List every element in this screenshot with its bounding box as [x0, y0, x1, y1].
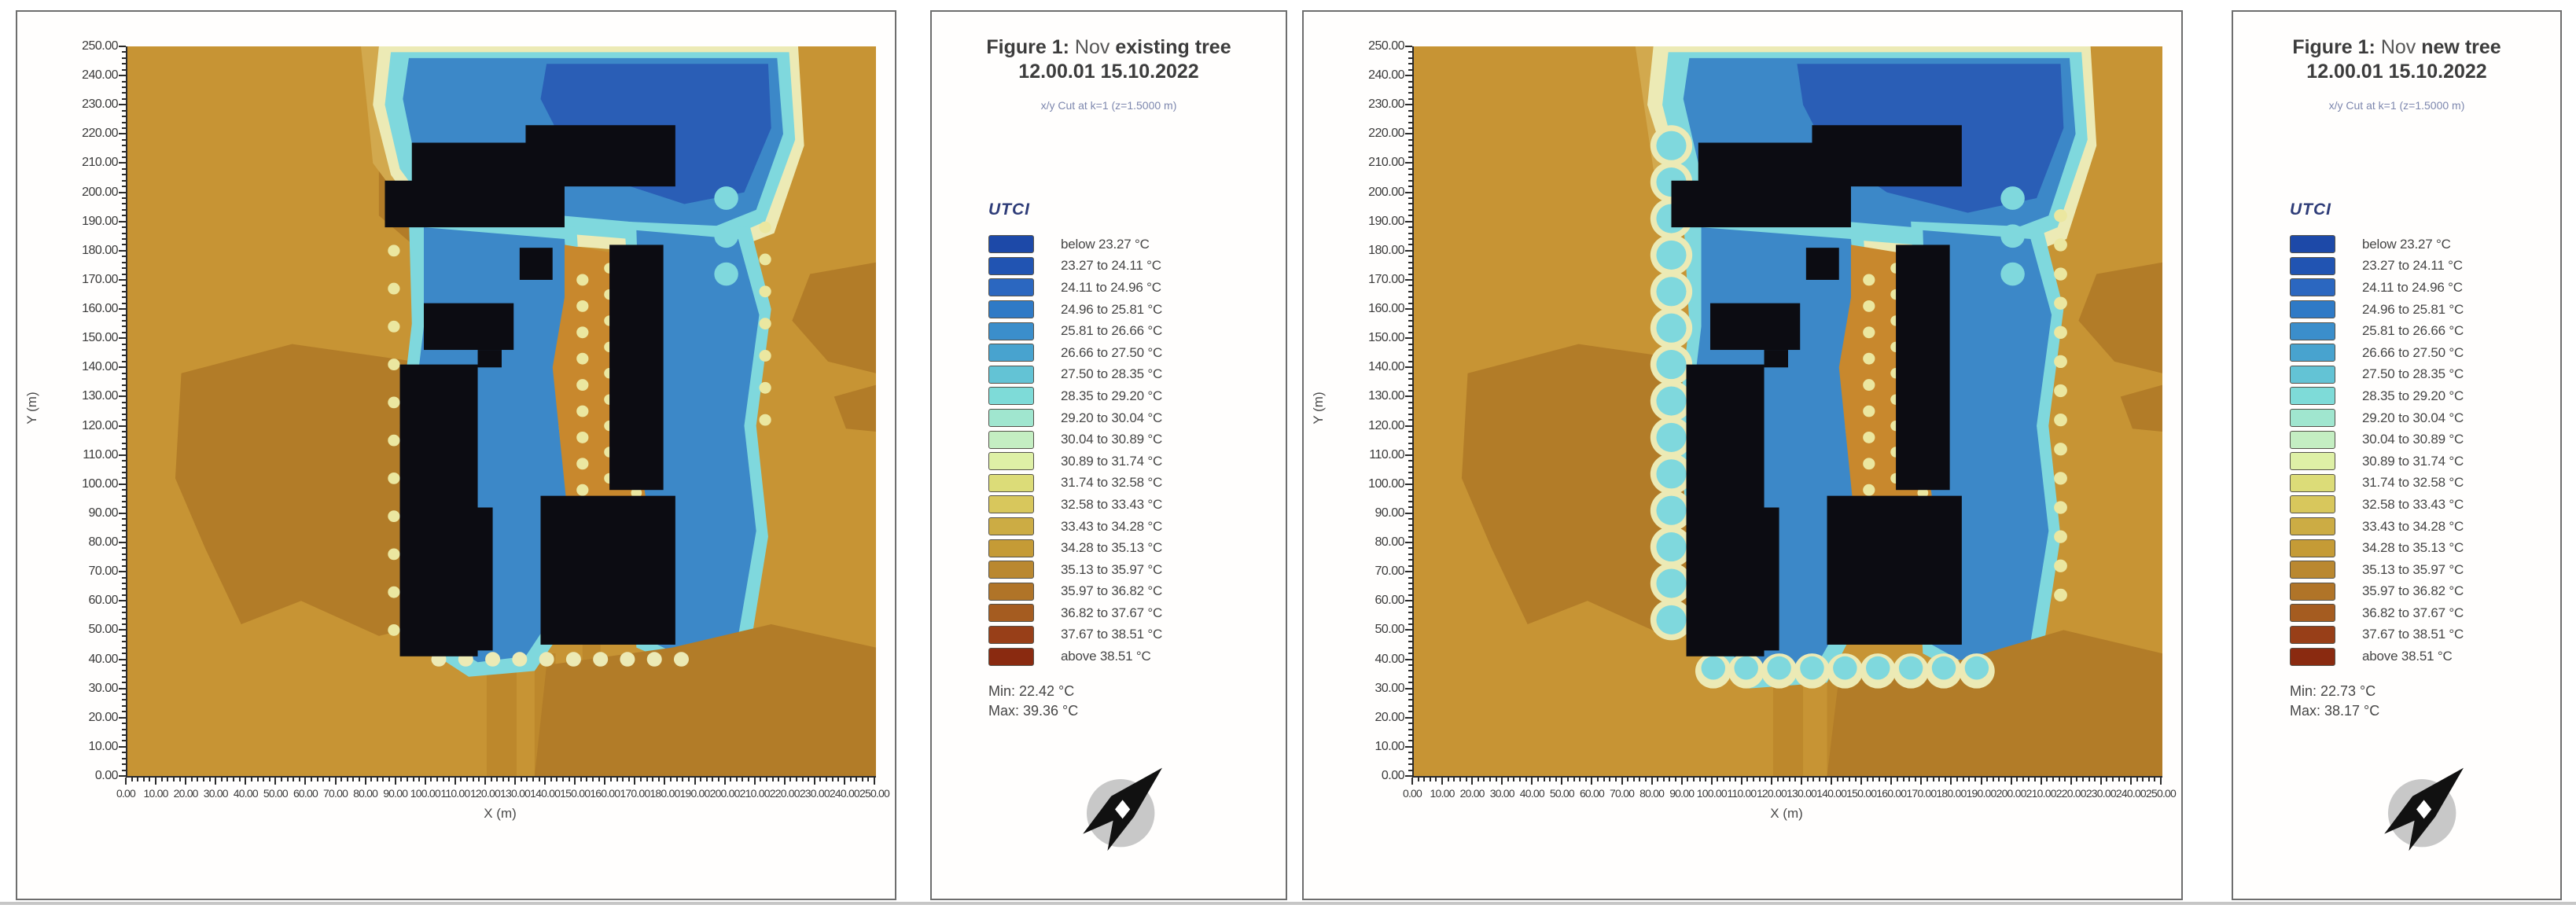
axis-tick — [2160, 778, 2162, 785]
axis-tick — [209, 778, 211, 781]
axis-tick — [874, 778, 875, 785]
axis-tick-label: 0.00 — [116, 787, 135, 800]
axis-tick-label: 50.00 — [1550, 787, 1574, 800]
axis-tick — [2046, 778, 2048, 781]
axis-tick — [867, 778, 869, 781]
legend-bin-label: 34.28 to 35.13 °C — [1061, 540, 1162, 556]
axis-tick — [365, 778, 366, 785]
axis-tick — [122, 226, 126, 228]
legend-bin-label: 37.67 to 38.51 °C — [2362, 627, 2464, 642]
axis-tick — [1405, 425, 1412, 427]
axis-tick — [473, 778, 474, 781]
legend-row: 24.96 to 25.81 °C — [2290, 299, 2464, 321]
axis-tick-label: 160.00 — [1348, 302, 1404, 316]
axis-tick — [122, 156, 126, 158]
axis-tick — [1405, 250, 1412, 252]
legend-bin-label: 35.97 to 36.82 °C — [1061, 583, 1162, 599]
axis-tick — [1681, 778, 1683, 785]
axis-tick — [616, 778, 618, 781]
axis-tick — [826, 778, 827, 781]
axis-tick — [814, 778, 815, 785]
axis-tick — [122, 577, 126, 579]
axis-tick — [1408, 110, 1412, 112]
figure-label: Figure 1: — [2292, 36, 2375, 58]
axis-tick — [2070, 778, 2072, 785]
axis-tick — [1938, 778, 1940, 781]
axis-tick — [370, 778, 372, 781]
legend-swatch — [2290, 322, 2335, 340]
axis-tick — [122, 618, 126, 620]
axis-tick — [122, 402, 126, 403]
legend-swatch — [2290, 539, 2335, 557]
axis-tick — [122, 559, 126, 561]
axis-tick — [122, 664, 126, 666]
axis-tick — [322, 778, 324, 781]
legend-row: 31.74 to 32.58 °C — [988, 473, 1162, 495]
axis-tick — [1408, 244, 1412, 245]
legend-bin-label: 35.13 to 35.97 °C — [2362, 562, 2464, 578]
axis-tick — [1746, 778, 1748, 781]
axis-tick — [1408, 291, 1412, 292]
legend-swatch — [988, 583, 1034, 601]
axis-tick — [1408, 419, 1412, 421]
axis-tick-label: 140.00 — [61, 360, 118, 374]
legend-swatch — [2290, 409, 2335, 427]
axis-tick — [1729, 778, 1731, 781]
legend-bin-label: 33.43 to 34.28 °C — [2362, 519, 2464, 535]
axis-tick — [119, 366, 126, 368]
axis-tick — [122, 407, 126, 409]
legend-row: 28.35 to 29.20 °C — [2290, 385, 2464, 407]
legend-bin-label: 29.20 to 30.04 °C — [2362, 410, 2464, 426]
axis-tick — [856, 778, 857, 781]
axis-tick — [1408, 226, 1412, 228]
axis-tick — [1585, 778, 1587, 781]
north-arrow-icon — [2379, 760, 2473, 855]
axis-tick-label: 60.00 — [61, 594, 118, 608]
axis-tick — [131, 778, 133, 781]
axis-tick — [335, 778, 337, 785]
axis-tick — [149, 778, 150, 781]
axis-tick — [1408, 361, 1412, 362]
axis-tick-label: 150.00 — [61, 331, 118, 345]
figure-datetime: 12.00.01 15.10.2022 — [2233, 60, 2560, 84]
map-panel-existing: Y (m) X (m) 0.000.0010.0010.0020.0020.00… — [16, 10, 896, 900]
legend-bin-label: 24.96 to 25.81 °C — [2362, 302, 2464, 318]
axis-tick — [119, 75, 126, 76]
axis-tick — [119, 192, 126, 193]
axis-tick — [1986, 778, 1988, 781]
axis-tick — [610, 778, 612, 781]
axis-tick-label: 210.00 — [1348, 156, 1404, 170]
axis-tick — [122, 180, 126, 182]
axis-tick — [1408, 670, 1412, 671]
axis-tick — [1408, 325, 1412, 327]
axis-tick — [122, 763, 126, 765]
axis-tick-label: 180.00 — [650, 787, 679, 800]
axis-tick-label: 30.00 — [1348, 682, 1404, 696]
map-panel-new: Y (m) X (m) 0.000.0010.0010.0020.0020.00… — [1302, 10, 2183, 900]
legend-swatch — [988, 495, 1034, 513]
legend-row: 27.50 to 28.35 °C — [2290, 364, 2464, 386]
axis-tick — [460, 778, 462, 781]
axis-tick — [122, 355, 126, 356]
axis-tick — [122, 647, 126, 649]
axis-tick — [766, 778, 767, 781]
axis-tick-label: 110.00 — [61, 448, 118, 462]
axis-tick — [122, 303, 126, 304]
axis-tick-label: 210.00 — [740, 787, 770, 800]
legend-row: below 23.27 °C — [2290, 234, 2464, 256]
legend-swatch — [2290, 387, 2335, 405]
axis-tick — [1408, 448, 1412, 450]
figure-month: Nov — [1069, 36, 1115, 58]
axis-tick — [1405, 133, 1412, 134]
axis-tick-label: 90.00 — [383, 787, 407, 800]
axis-tick — [122, 635, 126, 637]
legend-swatch — [988, 409, 1034, 427]
axis-tick-label: 100.00 — [410, 787, 440, 800]
axis-tick-label: 190.00 — [1348, 215, 1404, 229]
axis-tick — [122, 606, 126, 608]
axis-tick — [359, 778, 360, 781]
axis-tick-label: 70.00 — [1610, 787, 1634, 800]
axis-tick — [122, 203, 126, 204]
axis-tick — [1408, 274, 1412, 275]
axis-tick — [122, 98, 126, 100]
x-axis-title: X (m) — [484, 806, 517, 822]
axis-tick — [1885, 778, 1886, 781]
axis-tick — [862, 778, 863, 781]
legend-bin-label: 28.35 to 29.20 °C — [2362, 388, 2464, 404]
axis-tick-label: 10.00 — [61, 740, 118, 754]
axis-tick-label: 0.00 — [1403, 787, 1422, 800]
axis-tick — [789, 778, 791, 781]
legend-swatch — [988, 604, 1034, 622]
axis-tick — [2088, 778, 2090, 781]
axis-tick — [2004, 778, 2006, 781]
axis-tick — [496, 778, 498, 781]
legend-bin-label: 34.28 to 35.13 °C — [2362, 540, 2464, 556]
axis-tick — [122, 489, 126, 491]
axis-tick — [122, 291, 126, 292]
axis-tick — [122, 81, 126, 83]
axis-tick — [122, 139, 126, 141]
axis-tick — [191, 778, 193, 781]
axis-tick — [122, 390, 126, 392]
axis-tick — [122, 612, 126, 613]
legend-row: 29.20 to 30.04 °C — [2290, 407, 2464, 429]
axis-tick — [670, 778, 672, 781]
axis-tick — [1408, 320, 1412, 322]
axis-tick — [1408, 209, 1412, 211]
axis-tick — [122, 553, 126, 555]
axis-tick-label: 0.00 — [1348, 769, 1404, 783]
axis-tick — [1603, 778, 1605, 781]
axis-tick — [796, 778, 797, 781]
legend-row: 23.27 to 24.11 °C — [988, 256, 1162, 278]
axis-tick — [1974, 778, 1976, 781]
axis-tick — [1825, 778, 1827, 781]
axis-tick — [688, 778, 690, 781]
axis-tick — [2100, 778, 2102, 785]
axis-tick — [122, 734, 126, 736]
axis-tick — [748, 778, 749, 781]
axis-tick-label: 70.00 — [61, 564, 118, 579]
axis-tick — [1408, 186, 1412, 187]
y-axis-title: Y (m) — [24, 381, 40, 436]
axis-tick — [122, 641, 126, 642]
axis-tick-label: 120.00 — [61, 419, 118, 433]
axis-tick — [1408, 653, 1412, 654]
axis-tick — [119, 688, 126, 690]
axis-tick — [1567, 778, 1569, 781]
axis-tick — [122, 127, 126, 129]
axis-tick — [1765, 778, 1766, 781]
axis-tick-label: 230.00 — [2086, 787, 2116, 800]
axis-tick-label: 50.00 — [61, 623, 118, 637]
axis-tick — [682, 778, 683, 781]
axis-tick — [730, 778, 731, 781]
axis-tick — [430, 778, 432, 781]
axis-tick — [1408, 151, 1412, 153]
axis-tick — [580, 778, 582, 781]
axis-tick — [1579, 778, 1581, 781]
legend-bin-label: 25.81 to 26.66 °C — [2362, 323, 2464, 339]
axis-tick — [1735, 778, 1736, 781]
legend-bin-label: 31.74 to 32.58 °C — [1061, 475, 1162, 491]
axis-tick — [251, 778, 252, 781]
legend-bin-label: 30.89 to 31.74 °C — [1061, 454, 1162, 469]
axis-tick — [569, 778, 570, 781]
axis-tick — [778, 778, 779, 781]
axis-tick — [1408, 460, 1412, 462]
axis-tick — [1408, 116, 1412, 117]
axis-tick — [1408, 729, 1412, 730]
axis-tick — [221, 778, 223, 781]
axis-tick — [1968, 778, 1970, 781]
axis-tick — [425, 778, 426, 785]
axis-tick-label: 30.00 — [1490, 787, 1514, 800]
axis-tick — [122, 244, 126, 245]
axis-tick — [1687, 778, 1688, 781]
axis-tick — [122, 262, 126, 263]
legend-swatch — [988, 257, 1034, 275]
axis-tick — [122, 274, 126, 275]
axis-tick-label: 120.00 — [1348, 419, 1404, 433]
axis-tick — [257, 778, 259, 781]
axis-tick — [1408, 314, 1412, 316]
axis-tick — [1408, 647, 1412, 649]
legend-bin-label: 23.27 to 24.11 °C — [1061, 258, 1161, 274]
axis-tick-label: 190.00 — [680, 787, 710, 800]
axis-tick-label: 190.00 — [61, 215, 118, 229]
axis-tick — [233, 778, 234, 781]
axis-tick — [1408, 122, 1412, 123]
axis-tick — [1408, 553, 1412, 555]
axis-tick — [1408, 63, 1412, 64]
legend-row: 33.43 to 34.28 °C — [2290, 516, 2464, 538]
axis-tick — [539, 778, 540, 781]
axis-tick — [317, 778, 318, 781]
legend-row: 35.13 to 35.97 °C — [988, 559, 1162, 581]
legend-row: 25.81 to 26.66 °C — [988, 320, 1162, 342]
axis-tick-label: 130.00 — [1348, 389, 1404, 403]
axis-tick — [718, 778, 719, 781]
axis-tick-label: 140.00 — [1348, 360, 1404, 374]
axis-tick — [122, 436, 126, 438]
figure-scenario: new tree — [2421, 36, 2501, 58]
axis-tick — [1435, 778, 1437, 781]
axis-tick — [215, 778, 216, 785]
axis-tick — [122, 320, 126, 322]
axis-tick — [1405, 659, 1412, 660]
axis-tick — [119, 337, 126, 339]
axis-tick — [119, 250, 126, 252]
axis-tick — [119, 542, 126, 543]
axis-tick — [1408, 51, 1412, 53]
axis-tick — [122, 699, 126, 701]
axis-tick — [2094, 778, 2096, 781]
axis-tick — [1408, 635, 1412, 637]
axis-tick — [544, 778, 546, 785]
legend-swatch — [2290, 257, 2335, 275]
axis-tick — [837, 778, 839, 781]
axis-tick — [1478, 778, 1479, 781]
axis-tick — [1408, 506, 1412, 508]
axis-tick — [1657, 778, 1658, 781]
axis-tick — [122, 547, 126, 549]
axis-tick — [508, 778, 510, 781]
axis-tick — [1950, 778, 1952, 785]
legend-bin-label: 37.67 to 38.51 °C — [1061, 627, 1162, 642]
axis-tick — [1408, 559, 1412, 561]
axis-tick — [122, 233, 126, 234]
legend-row: 24.11 to 24.96 °C — [988, 277, 1162, 299]
legend-bin-label: 23.27 to 24.11 °C — [2362, 258, 2463, 274]
axis-tick — [2011, 778, 2012, 785]
legend-swatch — [988, 626, 1034, 644]
figure-title: Figure 1: Nov new tree 12.00.01 15.10.20… — [2233, 35, 2560, 118]
axis-tick — [1408, 606, 1412, 608]
axis-tick — [122, 583, 126, 584]
axis-tick — [1926, 778, 1928, 781]
axis-tick — [1408, 407, 1412, 409]
axis-tick — [1908, 778, 1910, 781]
legend-row: 32.58 to 33.43 °C — [988, 494, 1162, 516]
axis-tick — [2016, 778, 2018, 781]
axis-tick — [1711, 778, 1713, 785]
axis-tick — [1408, 682, 1412, 683]
legend-row: 36.82 to 37.67 °C — [2290, 602, 2464, 624]
plot-area-new — [1412, 46, 2162, 778]
legend-panel-new: Figure 1: Nov new tree 12.00.01 15.10.20… — [2232, 10, 2562, 900]
axis-tick — [119, 484, 126, 485]
axis-tick — [1408, 156, 1412, 158]
axis-tick-label: 190.00 — [1967, 787, 1996, 800]
axis-tick-label: 170.00 — [61, 273, 118, 287]
axis-tick — [122, 332, 126, 333]
axis-tick — [1408, 436, 1412, 438]
axis-tick-label: 80.00 — [1639, 787, 1664, 800]
axis-tick — [197, 778, 198, 781]
axis-tick — [1405, 395, 1412, 397]
legend-swatch — [2290, 561, 2335, 579]
axis-tick — [1753, 778, 1754, 781]
axis-tick — [712, 778, 713, 781]
axis-tick — [1897, 778, 1898, 781]
axis-tick — [413, 778, 414, 781]
axis-tick — [598, 778, 600, 781]
axis-tick-label: 150.00 — [1846, 787, 1876, 800]
axis-tick — [2130, 778, 2132, 785]
figure-bottom-border — [0, 902, 2576, 905]
axis-tick — [1408, 763, 1412, 765]
axis-tick-label: 240.00 — [2116, 787, 2146, 800]
axis-tick — [2022, 778, 2024, 781]
axis-tick — [1408, 238, 1412, 240]
axis-tick — [119, 279, 126, 281]
axis-tick — [388, 778, 390, 781]
axis-tick — [1408, 664, 1412, 666]
axis-tick — [226, 778, 228, 781]
axis-tick — [1717, 778, 1718, 781]
max-value: Max: 39.36 °C — [988, 701, 1078, 721]
axis-tick-label: 110.00 — [1727, 787, 1756, 800]
axis-tick — [1945, 778, 1946, 781]
figure-label: Figure 1: — [986, 36, 1069, 58]
axis-tick — [652, 778, 653, 781]
axis-tick — [628, 778, 630, 781]
axis-tick-label: 70.00 — [1348, 564, 1404, 579]
axis-tick — [1405, 775, 1412, 777]
axis-tick — [2034, 778, 2036, 781]
axis-tick — [122, 676, 126, 678]
axis-tick — [1466, 778, 1467, 781]
axis-tick — [1408, 127, 1412, 129]
legend-bin-label: 36.82 to 37.67 °C — [2362, 605, 2464, 621]
axis-tick — [1430, 778, 1431, 781]
axis-tick-label: 20.00 — [174, 787, 198, 800]
legend-bin-label: 35.97 to 36.82 °C — [2362, 583, 2464, 599]
axis-tick — [377, 778, 378, 781]
axis-tick-label: 100.00 — [61, 477, 118, 491]
axis-tick — [122, 63, 126, 64]
axis-tick — [2142, 778, 2144, 781]
axis-tick — [122, 752, 126, 753]
axis-tick — [1408, 495, 1412, 497]
axis-tick — [532, 778, 534, 781]
axis-tick — [736, 778, 738, 781]
legend-title: UTCI — [2290, 200, 2331, 219]
axis-tick — [1496, 778, 1497, 781]
axis-tick — [1405, 484, 1412, 485]
axis-tick — [592, 778, 594, 781]
axis-tick — [1759, 778, 1761, 781]
axis-tick — [1591, 778, 1592, 785]
north-arrow-icon — [1077, 760, 1172, 855]
axis-tick — [119, 425, 126, 427]
axis-tick — [1408, 565, 1412, 567]
legend-bin-label: 29.20 to 30.04 °C — [1061, 410, 1162, 426]
legend-row: 33.43 to 34.28 °C — [988, 516, 1162, 538]
legend-row: 26.66 to 27.50 °C — [988, 342, 1162, 364]
legend-swatch — [988, 278, 1034, 296]
axis-tick — [1408, 180, 1412, 182]
axis-tick — [167, 778, 168, 781]
axis-tick — [1597, 778, 1599, 781]
max-value: Max: 38.17 °C — [2290, 701, 2379, 721]
